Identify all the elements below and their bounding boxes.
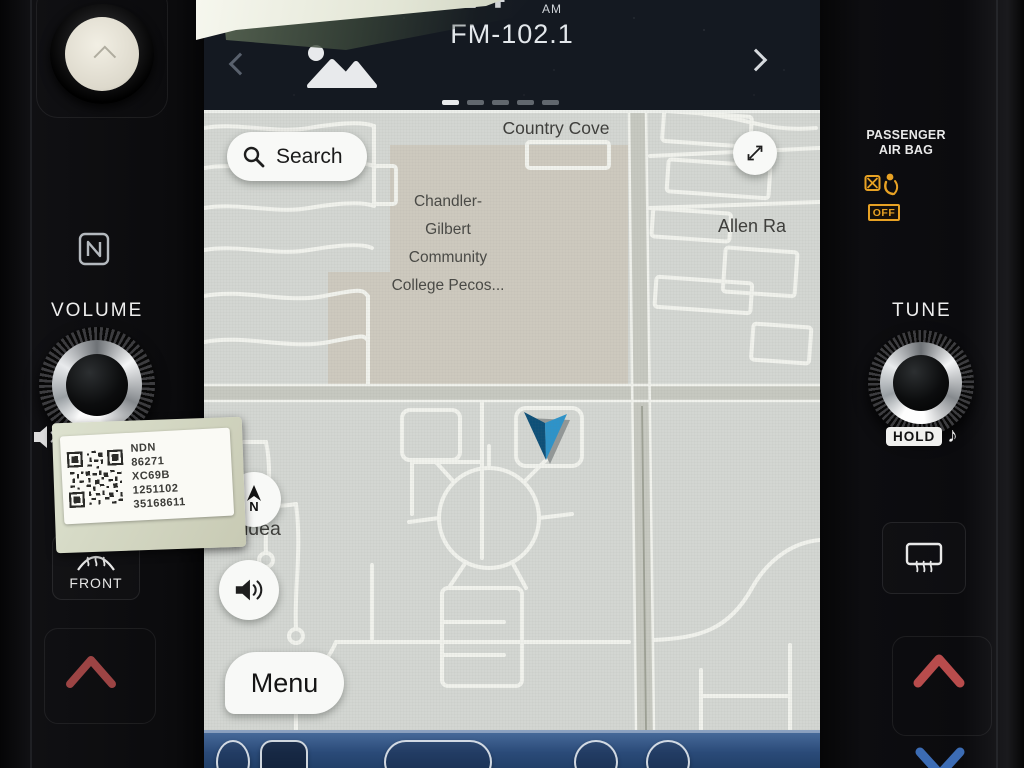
tune-knob[interactable] bbox=[868, 330, 974, 436]
sticker-text: NDN 86271 XC69B 1251102 35168611 bbox=[130, 439, 186, 512]
map-expand-button[interactable] bbox=[733, 131, 777, 175]
passenger-airbag-label: PASSENGER AIR BAG bbox=[860, 128, 952, 158]
climate-control-square[interactable] bbox=[260, 740, 308, 768]
front-label: FRONT bbox=[69, 575, 122, 591]
climate-control-circle-3[interactable] bbox=[646, 740, 690, 768]
sticker-label: NDN 86271 XC69B 1251102 35168611 bbox=[60, 428, 234, 525]
map-sound-button[interactable] bbox=[219, 560, 279, 620]
right-bezel-panel: PASSENGER AIR BAG OFF TUNE HOLD ♪ bbox=[820, 0, 1024, 768]
service-sticker: NDN 86271 XC69B 1251102 35168611 bbox=[54, 420, 244, 550]
left-bezel-panel: VOLUME FRONT bbox=[0, 0, 204, 768]
prev-track-button[interactable] bbox=[229, 53, 252, 76]
media-widget[interactable]: 24 AM FM-102.1 bbox=[204, 0, 820, 110]
touchscreen: 24 AM FM-102.1 bbox=[204, 0, 820, 768]
qr-code-icon bbox=[67, 449, 126, 508]
page-indicator bbox=[442, 100, 559, 105]
climate-bar bbox=[204, 730, 820, 768]
hold-indicator: HOLD ♪ bbox=[886, 424, 958, 448]
expand-icon bbox=[742, 140, 768, 166]
next-track-button[interactable] bbox=[745, 49, 768, 72]
poi-label-college: Chandler- Gilbert Community College Peco… bbox=[353, 188, 543, 300]
rear-defrost-icon bbox=[902, 540, 946, 576]
climate-control-circle-1[interactable] bbox=[216, 740, 250, 768]
airbag-off-icon bbox=[864, 172, 902, 202]
temp-up-right-button[interactable] bbox=[910, 650, 968, 690]
clock-display: 24 bbox=[454, 0, 546, 15]
radio-station-title: FM-102.1 bbox=[204, 19, 820, 50]
speaker-icon bbox=[233, 575, 265, 605]
temp-up-left-button[interactable] bbox=[62, 652, 120, 690]
music-note-icon: ♪ bbox=[947, 424, 958, 448]
clock-ampm: AM bbox=[542, 2, 562, 16]
volume-label: VOLUME bbox=[51, 300, 143, 322]
airbag-off-badge: OFF bbox=[868, 204, 900, 221]
navigation-map: Country Cove Allen Ra os Aldea Chandler-… bbox=[204, 110, 820, 730]
power-button[interactable] bbox=[50, 4, 154, 104]
menu-button[interactable]: Menu bbox=[225, 652, 344, 714]
search-icon bbox=[242, 145, 266, 169]
infotainment-console: 24 AM FM-102.1 bbox=[0, 0, 1024, 768]
tune-label: TUNE bbox=[892, 300, 952, 322]
rear-defrost-button[interactable] bbox=[882, 522, 966, 594]
climate-control-circle-2[interactable] bbox=[574, 740, 618, 768]
search-label: Search bbox=[276, 145, 343, 169]
climate-control-pill[interactable] bbox=[384, 740, 492, 768]
temp-down-right-button[interactable] bbox=[914, 746, 966, 768]
street-label-allen-ra: Allen Ra bbox=[718, 216, 786, 237]
search-button[interactable]: Search bbox=[227, 132, 367, 181]
album-art-icon bbox=[302, 42, 378, 88]
chevron-mark-icon bbox=[94, 46, 117, 69]
street-label-country-cove: Country Cove bbox=[486, 118, 626, 139]
nfc-logo-icon bbox=[78, 232, 110, 266]
menu-label: Menu bbox=[251, 668, 319, 699]
compass-letter: N bbox=[249, 499, 258, 514]
